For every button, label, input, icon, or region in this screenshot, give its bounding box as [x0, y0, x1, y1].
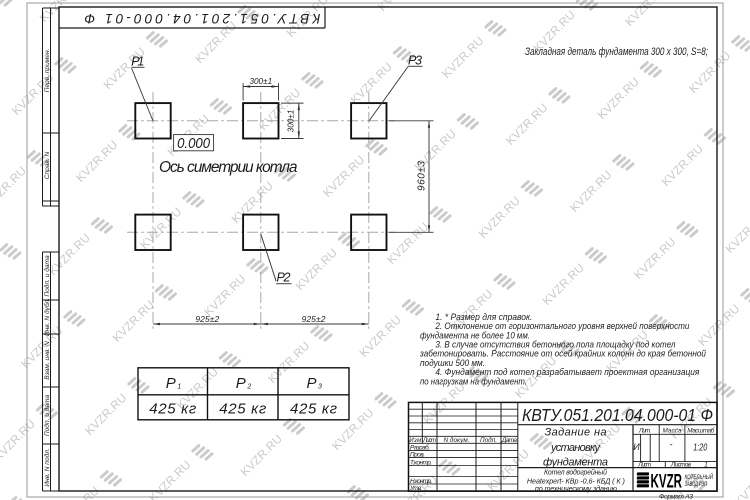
- svg-text:925±2: 925±2: [195, 314, 219, 324]
- svg-text:КОТЕЛЬНЫЙ: КОТЕЛЬНЫЙ: [685, 473, 714, 481]
- svg-text:Лист: Лист: [422, 437, 436, 444]
- svg-text:по техническому зданию: по техническому зданию: [535, 484, 618, 493]
- svg-text:Масштаб: Масштаб: [687, 427, 714, 435]
- svg-text:925±2: 925±2: [302, 314, 326, 324]
- svg-text:Разраб.: Разраб.: [410, 443, 430, 451]
- svg-text:Масса: Масса: [663, 428, 682, 435]
- svg-text:Котел водогрейный: Котел водогрейный: [544, 468, 607, 476]
- svg-text:КВТУ.051.201.04.000-01 Ф: КВТУ.051.201.04.000-01 Ф: [84, 11, 320, 26]
- svg-text:фундамента: фундамента: [543, 456, 608, 468]
- svg-text:Пров.: Пров.: [410, 452, 425, 459]
- svg-text:Дата: Дата: [501, 437, 517, 444]
- svg-text:установку: установку: [550, 442, 602, 454]
- svg-text:300±1: 300±1: [249, 77, 272, 86]
- svg-text:Подп. и дата: Подп. и дата: [43, 395, 51, 437]
- svg-text:425 кг: 425 кг: [219, 401, 267, 418]
- svg-text:P1: P1: [131, 54, 144, 68]
- svg-text:Задание на: Задание на: [545, 427, 607, 439]
- svg-text:Формат А3: Формат А3: [659, 493, 693, 500]
- svg-text:Ось симетрии котла: Ось симетрии котла: [159, 159, 298, 176]
- svg-text:960±3: 960±3: [416, 161, 427, 191]
- svg-text:1:20: 1:20: [693, 441, 707, 453]
- svg-text:Н.контр.: Н.контр.: [410, 478, 432, 485]
- svg-text:2: 2: [246, 383, 251, 390]
- svg-text:Лит.: Лит.: [638, 428, 651, 435]
- svg-text:Подп. и дата: Подп. и дата: [43, 255, 51, 297]
- svg-text:0.000: 0.000: [177, 135, 211, 152]
- svg-text:1: 1: [704, 462, 708, 469]
- svg-text:P3: P3: [408, 54, 422, 68]
- svg-text:300±1: 300±1: [286, 110, 295, 133]
- svg-text:N докум.: N докум.: [444, 436, 470, 444]
- svg-text:КВТУ.051.201.04.000-01 Ф: КВТУ.051.201.04.000-01 Ф: [522, 405, 713, 425]
- svg-text:Справ. N: Справ. N: [44, 151, 51, 179]
- svg-text:И: И: [633, 442, 640, 452]
- svg-text:P: P: [306, 375, 316, 392]
- svg-text:Закладная деталь фундамента 3: Закладная деталь фундамента 300 х 300, S…: [525, 46, 708, 58]
- svg-text:Инв. N подл.: Инв. N подл.: [43, 448, 51, 487]
- svg-text:Инв. N дубл.: Инв. N дубл.: [43, 298, 51, 336]
- svg-text:Подп.: Подп.: [480, 436, 497, 444]
- svg-text:Перв. примен.: Перв. примен.: [44, 48, 51, 92]
- svg-text:KVZR: KVZR: [651, 471, 683, 492]
- svg-text:-: -: [670, 440, 673, 450]
- svg-text:Листов: Листов: [670, 462, 692, 469]
- svg-text:P: P: [166, 375, 176, 392]
- svg-text:Изм: Изм: [409, 437, 422, 444]
- svg-text:425 кг: 425 кг: [149, 401, 197, 418]
- svg-text:Лист: Лист: [637, 462, 652, 469]
- svg-text:Утв.: Утв.: [409, 485, 422, 492]
- svg-text:Т.контр.: Т.контр.: [410, 459, 432, 466]
- svg-text:Взам. инв. N: Взам. инв. N: [44, 341, 51, 380]
- svg-text:3: 3: [318, 383, 322, 390]
- svg-text:425 кг: 425 кг: [290, 401, 338, 418]
- svg-text:ЗАВОД РЭП: ЗАВОД РЭП: [685, 482, 708, 488]
- svg-text:по нагрузкам на фундамент.: по нагрузкам на фундамент.: [420, 376, 527, 386]
- svg-text:1: 1: [177, 383, 181, 390]
- svg-text:P2: P2: [277, 271, 291, 285]
- svg-text:P: P: [236, 375, 246, 392]
